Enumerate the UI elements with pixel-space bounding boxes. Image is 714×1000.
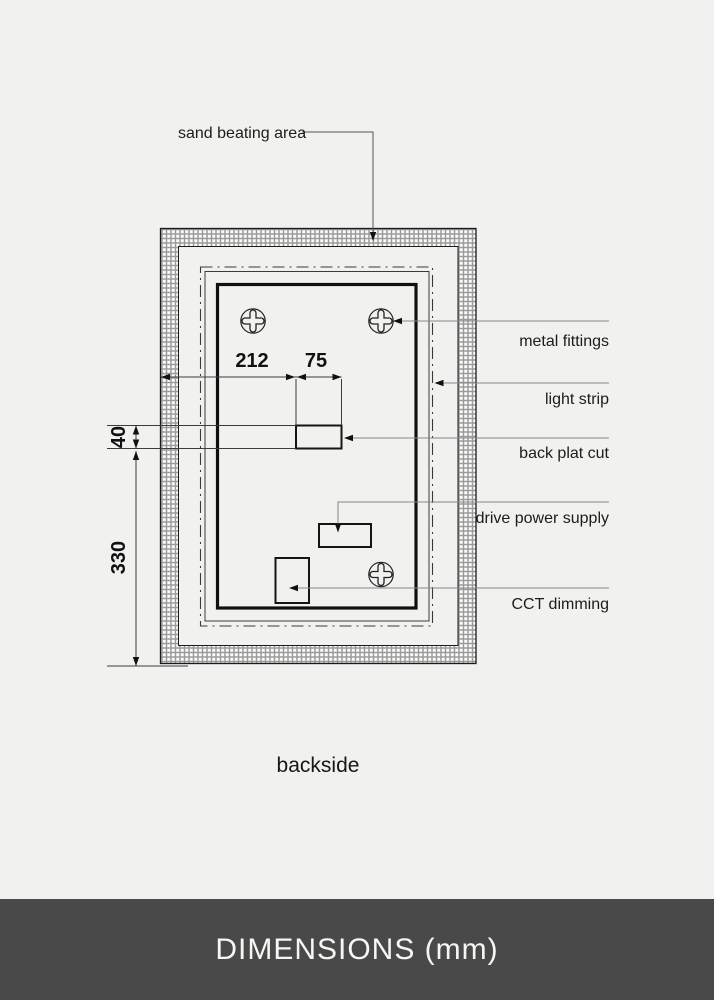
dimension-330-label: 330	[108, 541, 130, 574]
label-light-strip: light strip	[545, 391, 609, 408]
screw-icon	[369, 562, 393, 586]
label-metal-fittings: metal fittings	[519, 333, 609, 350]
sand-beating-leader	[302, 132, 376, 241]
footer-title: DIMENSIONS (mm)	[215, 933, 498, 967]
label-drive-power-supply: drive power supply	[476, 510, 609, 527]
label-sand-beating-area: sand beating area	[178, 125, 306, 142]
backside-technical-drawing: 212 75 40 330 sand beating area	[0, 0, 714, 899]
screw-icon	[369, 309, 393, 333]
dimension-212-label: 212	[235, 350, 268, 372]
cct-dimming-rect	[276, 558, 310, 603]
page: 212 75 40 330 sand beating area	[0, 0, 714, 1000]
label-cct-dimming: CCT dimming	[512, 596, 610, 613]
backside-caption: backside	[277, 754, 360, 777]
screw-icon	[241, 309, 265, 333]
footer-bar: DIMENSIONS (mm)	[0, 899, 714, 1000]
label-back-plat-cut: back plat cut	[519, 445, 609, 462]
back-plat-cut-rect	[296, 426, 342, 449]
drive-power-supply-rect	[319, 524, 371, 547]
dimension-40-label: 40	[108, 426, 130, 448]
dimension-75-label: 75	[305, 350, 327, 372]
